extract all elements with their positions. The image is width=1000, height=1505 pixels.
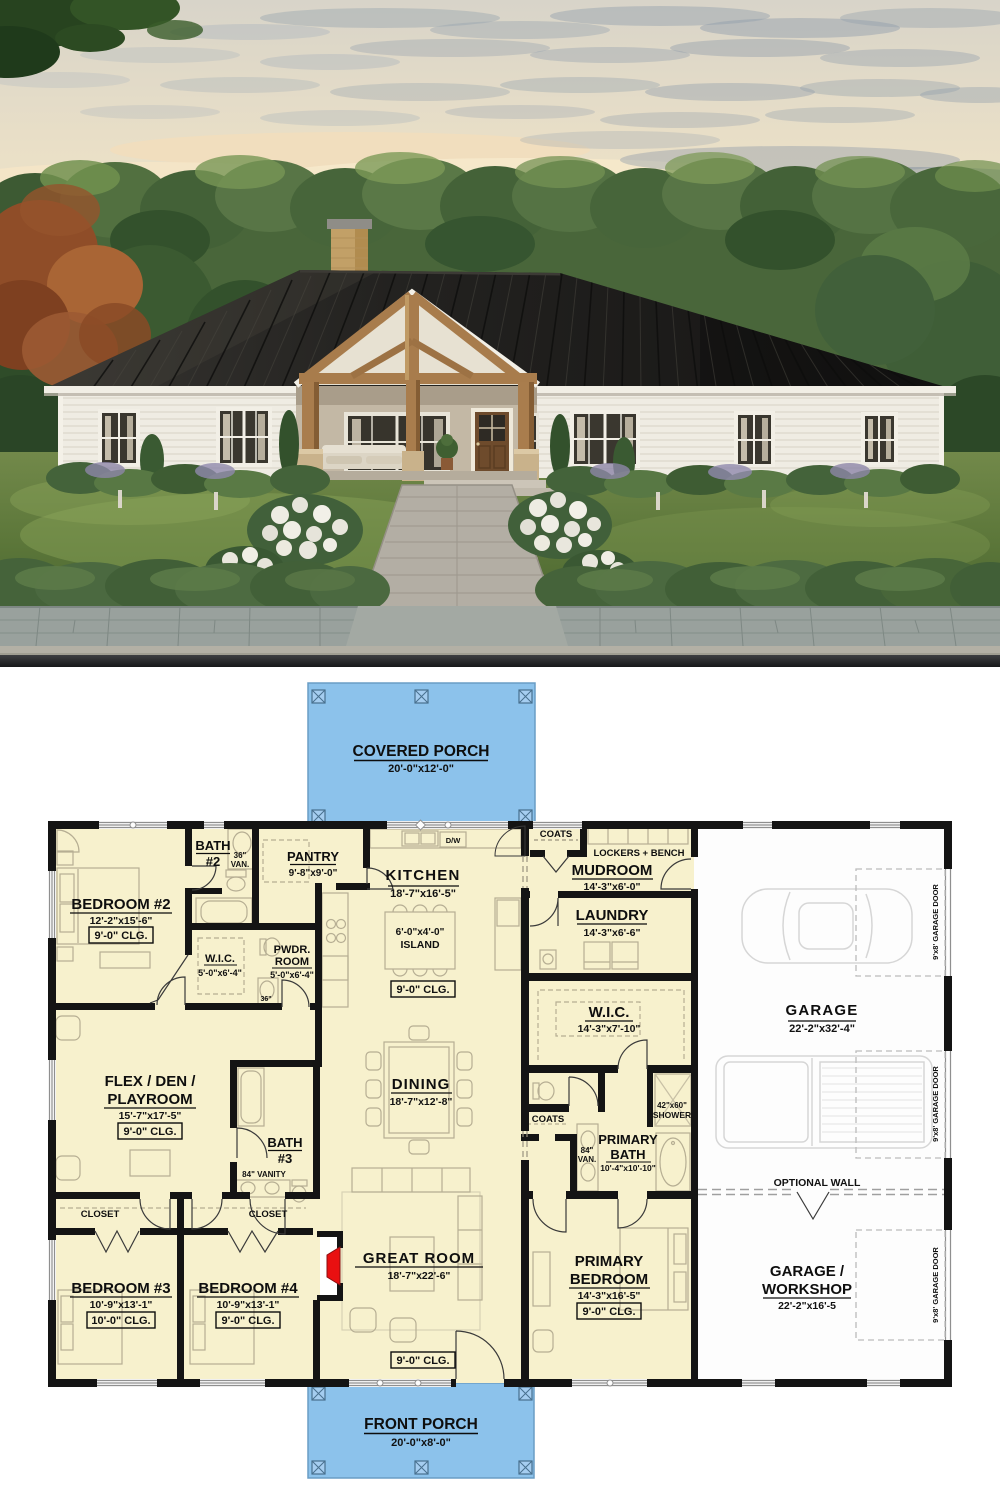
svg-text:PRIMARY: PRIMARY <box>598 1132 658 1147</box>
svg-text:BATH: BATH <box>610 1147 645 1162</box>
svg-text:84": 84" <box>581 1146 594 1155</box>
svg-text:9'-0" CLG.: 9'-0" CLG. <box>582 1306 635 1318</box>
svg-text:ISLAND: ISLAND <box>400 939 440 951</box>
svg-text:OPTIONAL WALL: OPTIONAL WALL <box>774 1177 861 1189</box>
svg-text:MUDROOM: MUDROOM <box>572 862 653 879</box>
svg-text:FLEX / DEN /: FLEX / DEN / <box>105 1073 197 1090</box>
svg-text:9'x8' GARAGE DOOR: 9'x8' GARAGE DOOR <box>931 1066 940 1142</box>
svg-text:BEDROOM #2: BEDROOM #2 <box>71 896 170 913</box>
svg-text:FRONT PORCH: FRONT PORCH <box>364 1416 478 1433</box>
svg-text:18'-7"x16'-5": 18'-7"x16'-5" <box>390 888 456 900</box>
svg-text:9'-0" CLG.: 9'-0" CLG. <box>396 984 449 996</box>
svg-text:9'-0" CLG.: 9'-0" CLG. <box>396 1355 449 1367</box>
svg-text:9'-0" CLG.: 9'-0" CLG. <box>221 1315 274 1327</box>
svg-text:PRIMARY: PRIMARY <box>575 1253 644 1270</box>
svg-text:20'-0"x12'-0": 20'-0"x12'-0" <box>388 763 454 775</box>
svg-text:BEDROOM: BEDROOM <box>570 1271 648 1288</box>
svg-text:18'-7"x22'-6": 18'-7"x22'-6" <box>388 1270 451 1282</box>
svg-text:#3: #3 <box>278 1151 292 1166</box>
svg-text:PWDR.: PWDR. <box>274 944 311 956</box>
svg-text:14'-3"x16'-5": 14'-3"x16'-5" <box>578 1290 641 1302</box>
svg-text:20'-0"x8'-0": 20'-0"x8'-0" <box>391 1437 451 1449</box>
svg-text:36": 36" <box>234 851 247 860</box>
svg-text:14'-3"x6'-6": 14'-3"x6'-6" <box>584 927 641 939</box>
svg-text:15'-7"x17'-5": 15'-7"x17'-5" <box>119 1110 182 1122</box>
svg-text:KITCHEN: KITCHEN <box>385 867 460 884</box>
svg-text:9'-0" CLG.: 9'-0" CLG. <box>123 1126 176 1138</box>
svg-text:CLOSET: CLOSET <box>81 1209 120 1220</box>
svg-text:9'x8' GARAGE DOOR: 9'x8' GARAGE DOOR <box>931 884 940 960</box>
svg-text:PANTRY: PANTRY <box>287 849 339 864</box>
svg-text:LAUNDRY: LAUNDRY <box>576 907 649 924</box>
svg-text:BATH: BATH <box>267 1135 302 1150</box>
svg-text:#2: #2 <box>206 854 220 869</box>
svg-text:COVERED PORCH: COVERED PORCH <box>353 743 490 760</box>
svg-text:GARAGE /: GARAGE / <box>770 1263 845 1280</box>
svg-text:BEDROOM #4: BEDROOM #4 <box>198 1280 298 1297</box>
svg-text:10'-0" CLG.: 10'-0" CLG. <box>91 1315 150 1327</box>
svg-text:COATS: COATS <box>532 1114 565 1125</box>
svg-text:5'-0"x6'-4": 5'-0"x6'-4" <box>198 968 242 978</box>
svg-text:GREAT ROOM: GREAT ROOM <box>363 1250 475 1267</box>
svg-text:5'-0"x6'-4": 5'-0"x6'-4" <box>270 970 314 980</box>
svg-text:W.I.C.: W.I.C. <box>589 1004 630 1021</box>
svg-text:ROOM: ROOM <box>275 956 309 968</box>
svg-text:COATS: COATS <box>540 829 573 840</box>
svg-text:36": 36" <box>260 996 271 1003</box>
svg-text:6'-0"x4'-0": 6'-0"x4'-0" <box>396 927 445 938</box>
svg-text:VAN.: VAN. <box>231 860 250 869</box>
svg-text:PLAYROOM: PLAYROOM <box>107 1091 192 1108</box>
svg-text:VAN.: VAN. <box>578 1155 597 1164</box>
svg-text:WORKSHOP: WORKSHOP <box>762 1281 852 1298</box>
svg-text:SHOWER: SHOWER <box>653 1110 691 1120</box>
svg-text:DINING: DINING <box>392 1076 451 1093</box>
svg-text:LOCKERS + BENCH: LOCKERS + BENCH <box>593 848 684 859</box>
svg-text:84" VANITY: 84" VANITY <box>242 1170 286 1179</box>
svg-text:CLOSET: CLOSET <box>249 1209 288 1220</box>
svg-text:22'-2"x16'-5: 22'-2"x16'-5 <box>778 1300 836 1312</box>
svg-text:18'-7"x12'-8": 18'-7"x12'-8" <box>390 1096 453 1108</box>
svg-text:9'-0" CLG.: 9'-0" CLG. <box>94 930 147 942</box>
svg-text:22'-2"x32'-4": 22'-2"x32'-4" <box>789 1023 855 1035</box>
svg-text:10'-9"x13'-1": 10'-9"x13'-1" <box>217 1299 280 1311</box>
svg-text:12'-2"x15'-6": 12'-2"x15'-6" <box>90 915 153 927</box>
svg-text:10'-9"x13'-1": 10'-9"x13'-1" <box>90 1299 153 1311</box>
svg-text:9'-8"x9'-0": 9'-8"x9'-0" <box>289 868 338 879</box>
svg-text:10'-4"x10'-10": 10'-4"x10'-10" <box>600 1163 656 1173</box>
svg-text:14'-3"x7'-10": 14'-3"x7'-10" <box>578 1023 641 1035</box>
svg-text:9'x8' GARAGE DOOR: 9'x8' GARAGE DOOR <box>931 1247 940 1323</box>
svg-text:BATH: BATH <box>195 838 230 853</box>
svg-text:42"x60": 42"x60" <box>657 1101 687 1110</box>
svg-text:GARAGE: GARAGE <box>785 1002 858 1019</box>
svg-text:14'-3"x6'-0": 14'-3"x6'-0" <box>584 881 641 893</box>
svg-text:W.I.C.: W.I.C. <box>205 953 235 965</box>
svg-text:D/W: D/W <box>446 836 462 845</box>
svg-text:BEDROOM #3: BEDROOM #3 <box>71 1280 170 1297</box>
